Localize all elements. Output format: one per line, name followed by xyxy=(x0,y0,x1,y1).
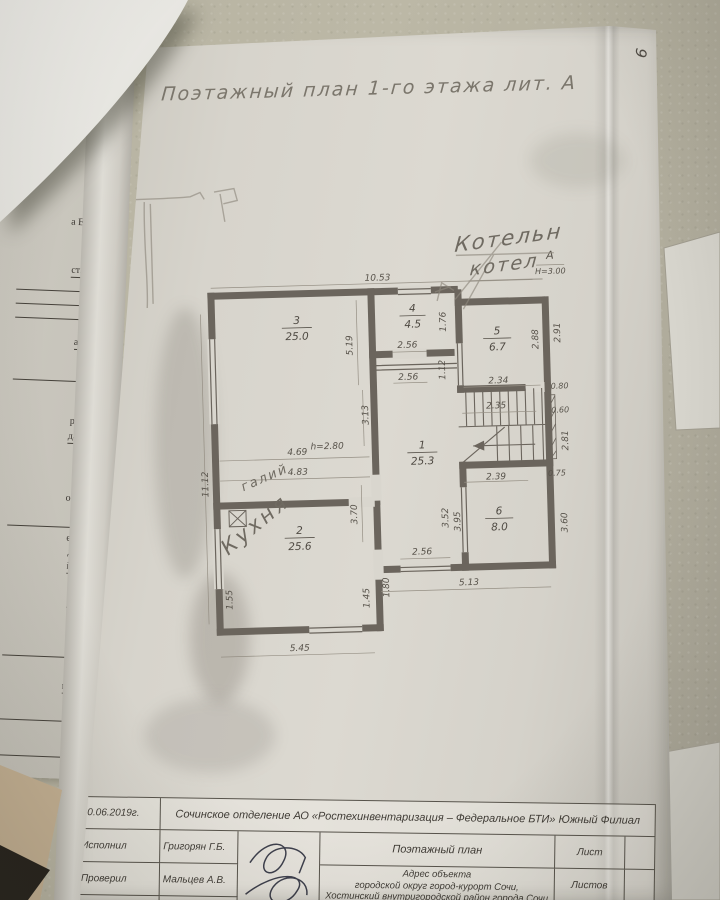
photographed-floor-plan-document: { "photo": { "handwritten_page_number": … xyxy=(0,0,720,900)
curled-page-shape xyxy=(0,0,188,222)
curled-page-corner xyxy=(0,0,720,900)
